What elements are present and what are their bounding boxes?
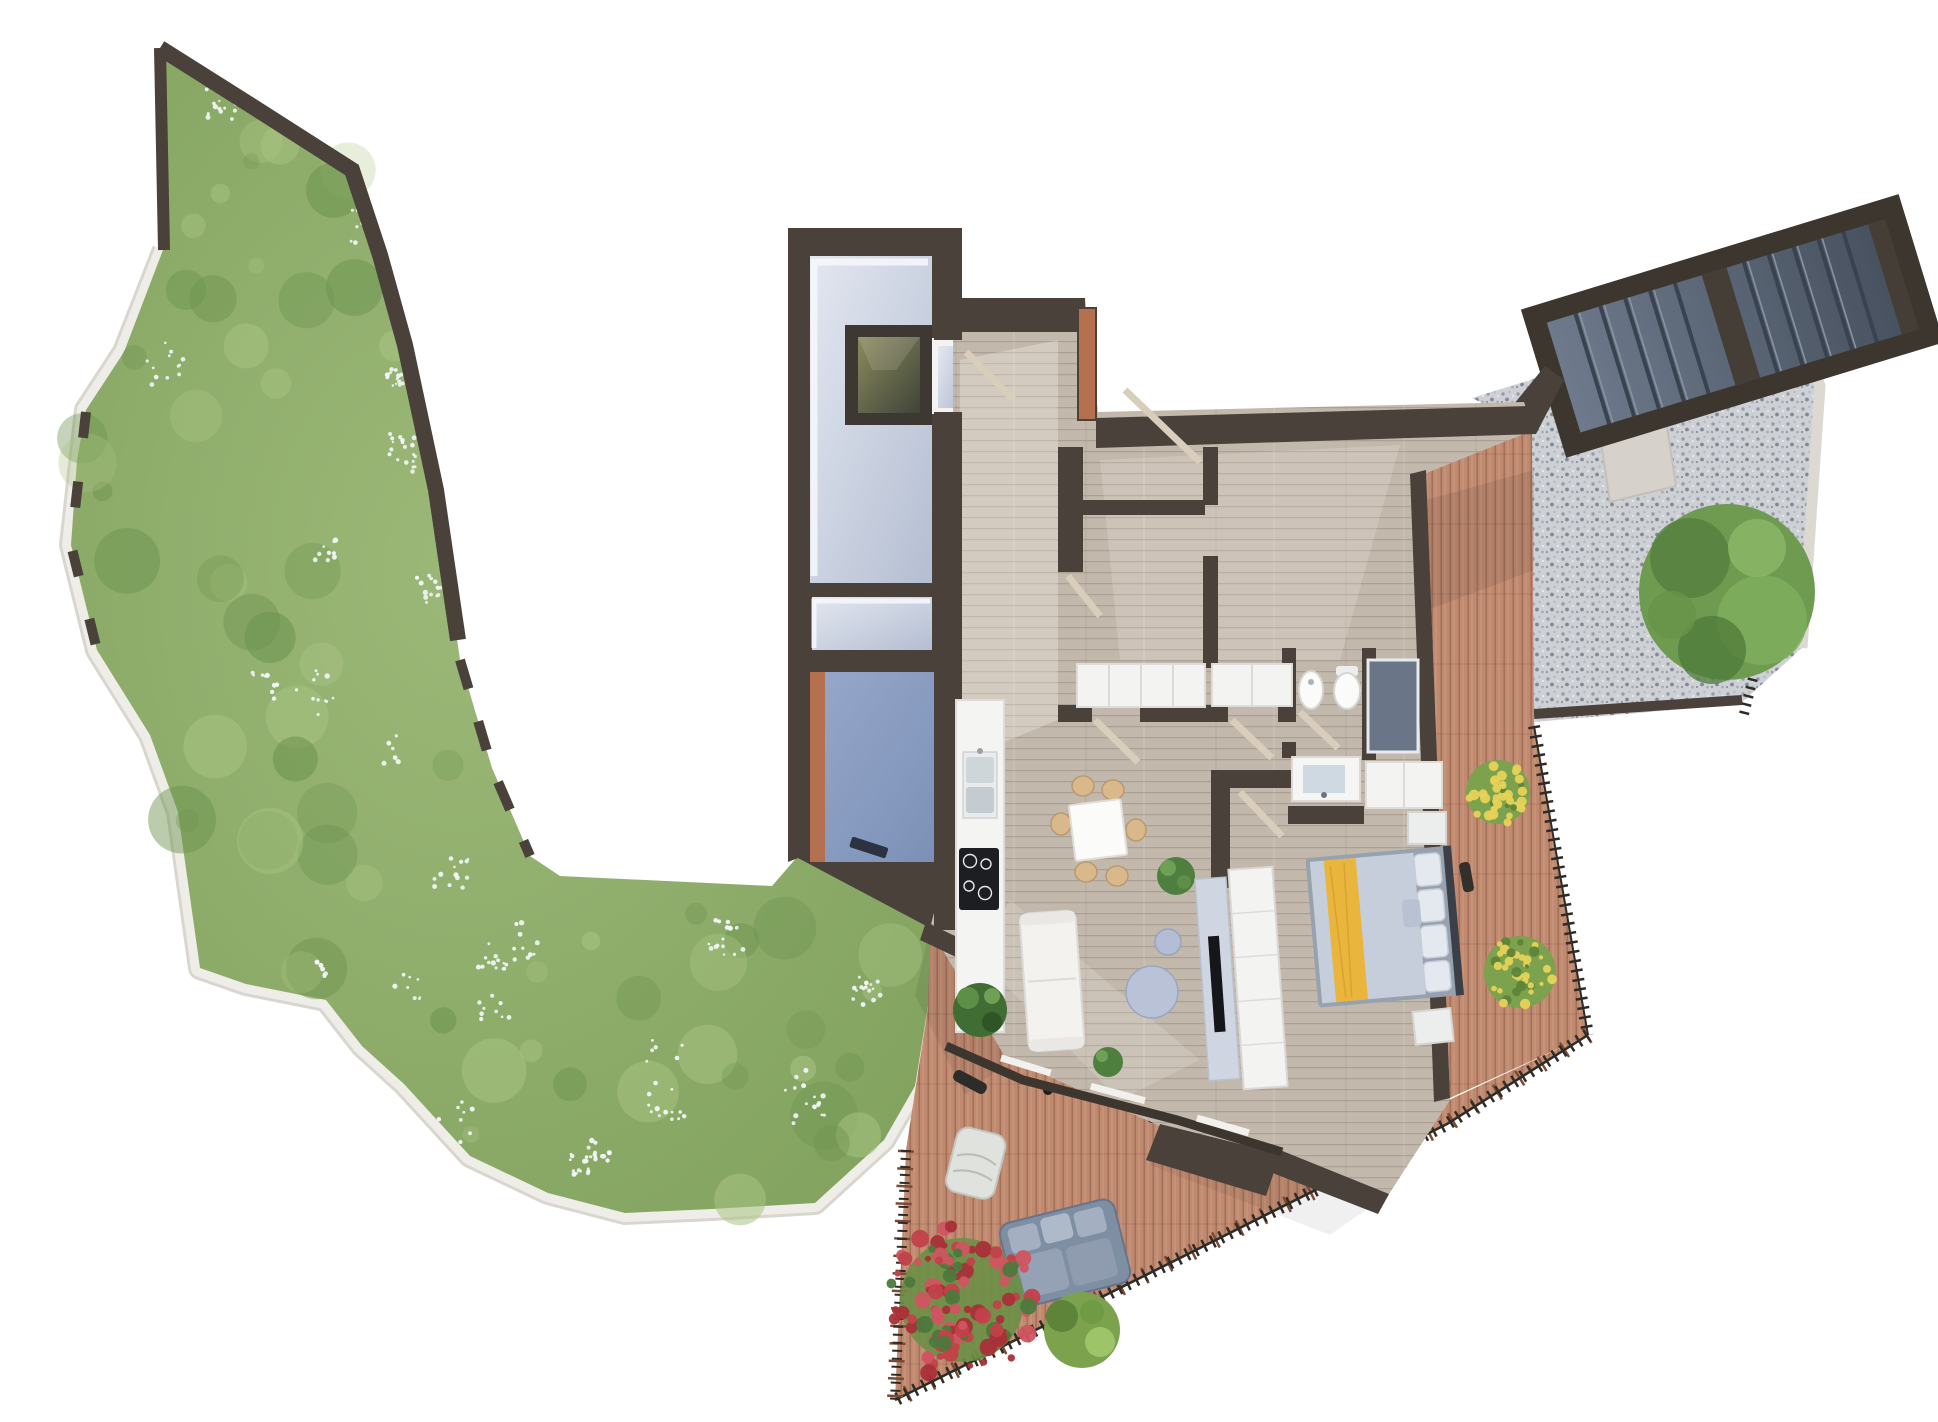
vanity-sink: [1292, 757, 1360, 801]
floor-plan-render: Top-down 3D architectural floor plan ren…: [0, 0, 1938, 1422]
nightstand: [1408, 812, 1446, 844]
dining-table: [1069, 799, 1127, 861]
shower: [1368, 660, 1418, 752]
floor-plan-svg: Top-down 3D architectural floor plan ren…: [0, 0, 1938, 1422]
entry-stairwell-room: Concrete entry stairwell with roof hatch…: [810, 256, 932, 583]
bidet: [1299, 671, 1323, 709]
potted-plant: [1093, 1047, 1123, 1077]
cooktop: [959, 848, 999, 910]
kitchen-sink: [963, 748, 997, 818]
cellar-room: Cellar room with blue concrete floor and…: [810, 672, 945, 862]
nightstand: [1412, 1008, 1453, 1045]
kitchen: Open kitchen with sink and induction coo…: [956, 700, 1004, 1032]
builtin-closets: [1077, 664, 1292, 707]
potted-plant: [1157, 857, 1195, 895]
coffee-table-large: [1126, 966, 1178, 1018]
terracotta-corner-wall: [1078, 308, 1096, 420]
potted-plant-large: [953, 983, 1007, 1037]
toilet: [1334, 666, 1360, 709]
bed-accent-cushion: [1401, 898, 1421, 927]
cellar-terracotta-wall: [810, 672, 825, 862]
coffee-table-small: [1155, 929, 1181, 955]
storage-room: Small concrete storage room: [812, 597, 932, 650]
